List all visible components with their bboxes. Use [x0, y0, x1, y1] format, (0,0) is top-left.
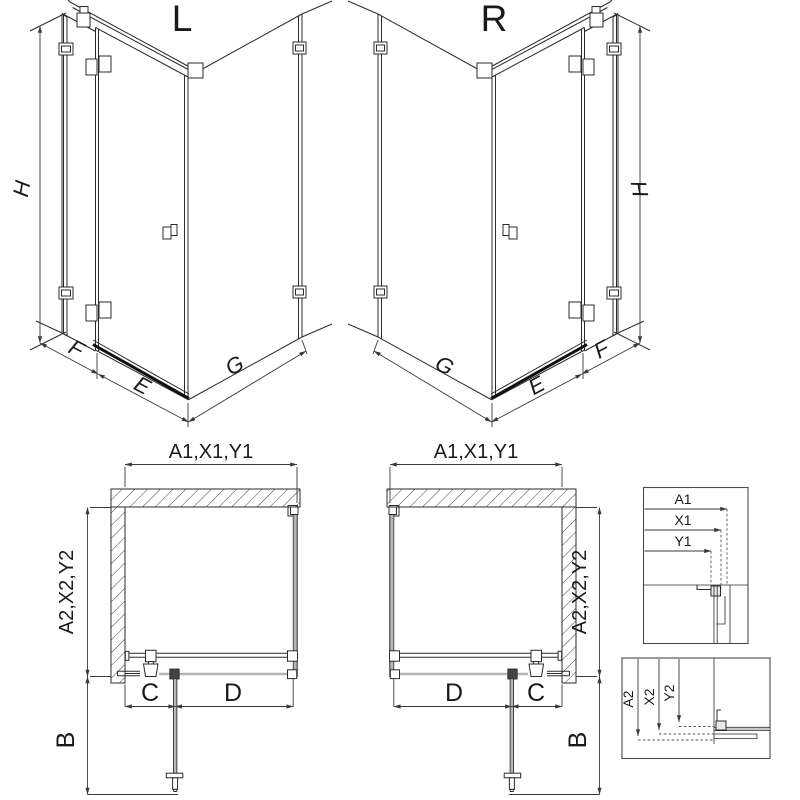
- detail-depth-dim-a2: A2: [620, 690, 636, 707]
- plan-left-dim-c: C: [141, 679, 159, 707]
- iso-right-view: R H F E G: [348, 0, 653, 427]
- plan-right-dim-depth: A2,X2,Y2: [569, 550, 591, 635]
- shower-enclosure-diagram: L H F E G R H F E G A1,X1,Y1 A2,X2,Y2 C …: [0, 0, 800, 800]
- plan-right-dim-c: C: [527, 679, 545, 707]
- iso-left-linework: [30, 0, 332, 427]
- plan-right-dim-width: A1,X1,Y1: [434, 441, 519, 463]
- technical-drawing-page: L H F E G R H F E G A1,X1,Y1 A2,X2,Y2 C …: [0, 0, 800, 800]
- detail-depth-dim-x2: X2: [641, 688, 657, 705]
- detail-depth-box: A2 X2 Y2: [620, 658, 770, 759]
- plan-right-top-wall: [387, 489, 576, 507]
- iso-left-dim-g: G: [221, 350, 248, 380]
- plan-left-dim-b: B: [52, 732, 80, 749]
- iso-right-dim-e: E: [524, 371, 549, 400]
- iso-right-variant-label: R: [481, 0, 508, 39]
- iso-right-dim-h: H: [626, 179, 653, 199]
- plan-right-view: A1,X1,Y1 A2,X2,Y2 D C B: [387, 441, 600, 795]
- plan-right-dim-b: B: [564, 732, 592, 749]
- iso-right-linework: [348, 0, 650, 427]
- plan-left-dim-depth: A2,X2,Y2: [56, 550, 78, 635]
- iso-right-dim-f: F: [590, 334, 615, 363]
- detail-depth-dim-y2: Y2: [661, 684, 677, 701]
- iso-left-dim-f: F: [65, 334, 90, 363]
- iso-left-dim-h: H: [8, 179, 35, 199]
- plan-left-top-wall: [111, 489, 300, 507]
- detail-width-dim-a1: A1: [674, 491, 691, 507]
- iso-right-dim-g: G: [431, 350, 458, 380]
- detail-width-dim-y1: Y1: [674, 533, 691, 549]
- detail-width-box: A1 X1 Y1: [644, 488, 749, 644]
- iso-left-variant-label: L: [172, 0, 193, 39]
- iso-left-view: L H F E G: [8, 0, 332, 427]
- plan-right-dim-d: D: [445, 679, 463, 707]
- plan-left-view: A1,X1,Y1 A2,X2,Y2 C D B: [52, 441, 300, 795]
- detail-width-dim-x1: X1: [674, 512, 691, 528]
- iso-left-dim-e: E: [130, 371, 155, 400]
- plan-left-dim-d: D: [224, 679, 242, 707]
- plan-left-dim-width: A1,X1,Y1: [169, 441, 254, 463]
- plan-left-side-wall: [111, 507, 125, 683]
